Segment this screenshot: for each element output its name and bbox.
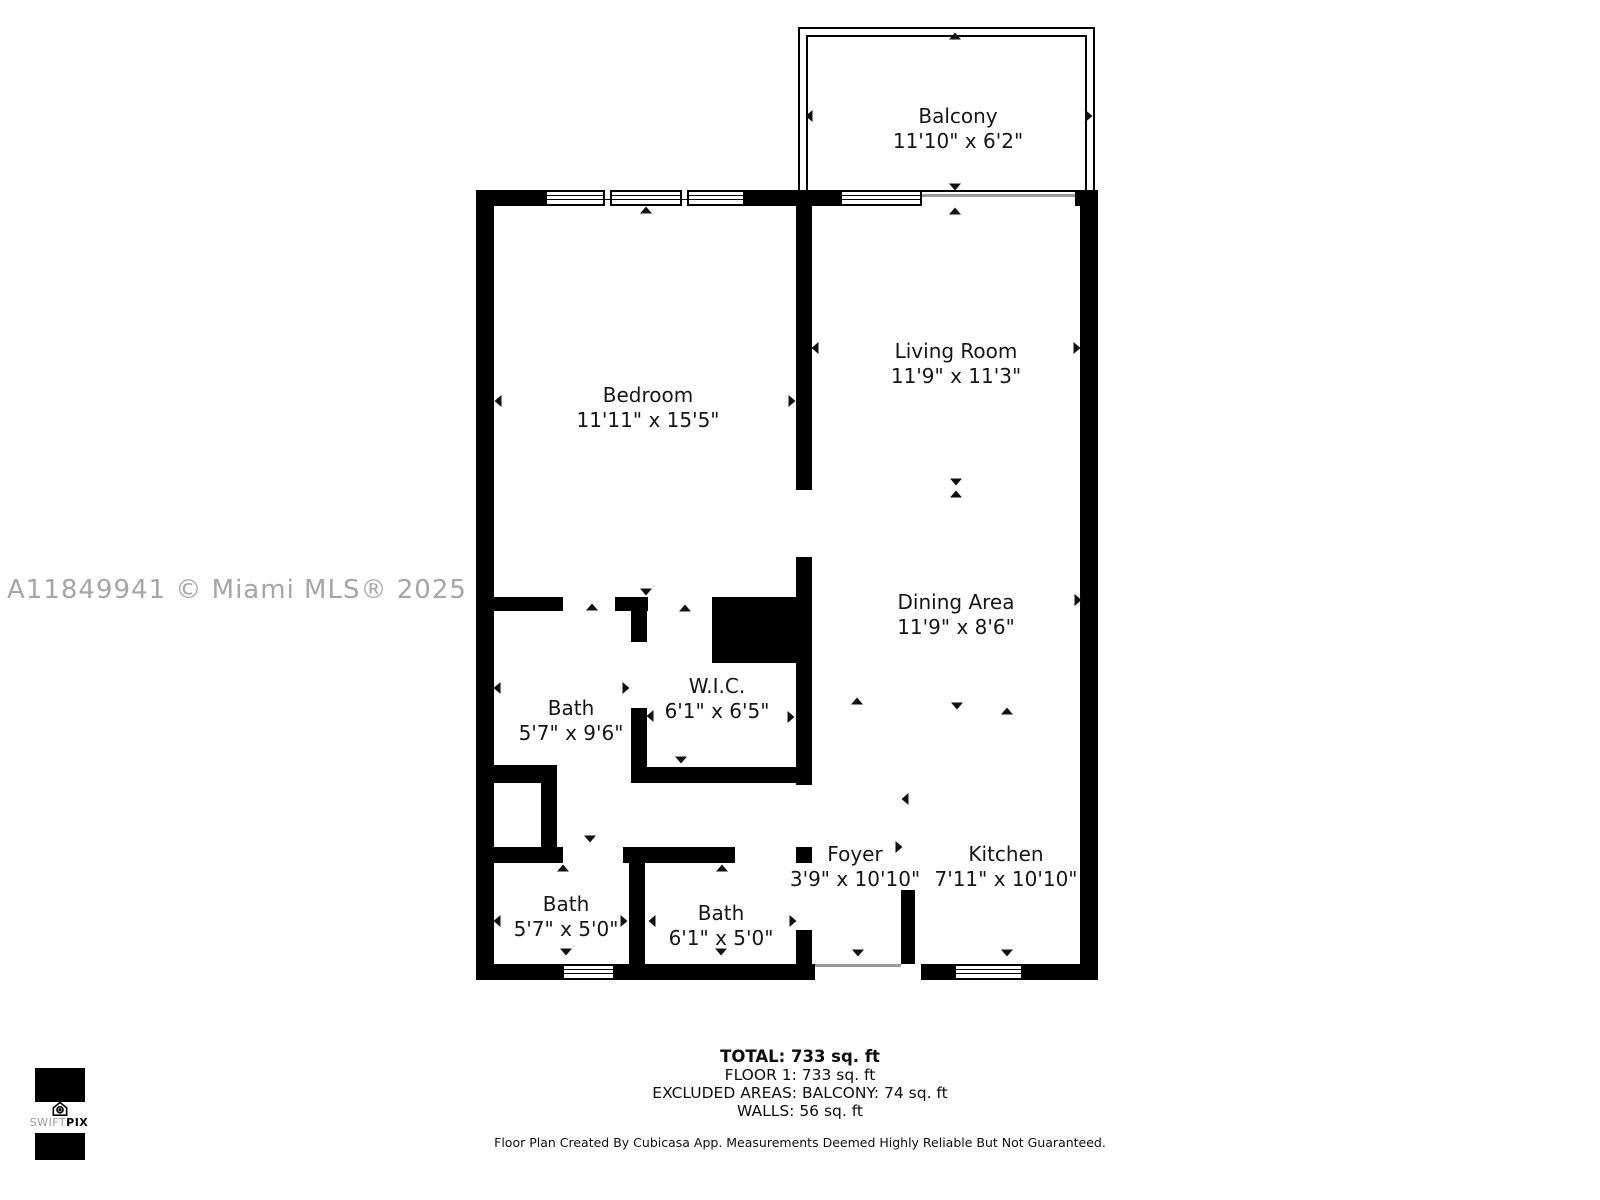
measure-arrow-icon — [623, 682, 630, 694]
measure-arrow-icon — [584, 836, 596, 843]
logo-wordmark: SWIFTPIX — [27, 1116, 91, 1129]
logo-square-bottom — [35, 1133, 85, 1160]
area-summary: TOTAL: 733 sq. ft FLOOR 1: 733 sq. ft EX… — [0, 1048, 1600, 1120]
living-room-window — [840, 190, 922, 206]
wall-segment — [631, 597, 647, 642]
measure-arrow-icon — [621, 915, 628, 927]
measure-arrow-icon — [949, 33, 961, 40]
excluded-area: EXCLUDED AREAS: BALCONY: 74 sq. ft — [0, 1084, 1600, 1102]
wall-segment — [476, 190, 545, 206]
balcony-sliding-door-opening — [922, 194, 1075, 197]
measure-arrow-icon — [640, 207, 652, 214]
room-label-balcony: Balcony 11'10" x 6'2" — [893, 104, 1023, 154]
wall-segment — [745, 190, 840, 206]
measure-arrow-icon — [560, 949, 572, 956]
measure-arrow-icon — [851, 698, 863, 705]
logo-square-top — [35, 1068, 85, 1102]
entry-door-opening — [815, 964, 901, 967]
measure-arrow-icon — [494, 915, 501, 927]
measure-arrow-icon — [1074, 342, 1081, 354]
total-area: TOTAL: 733 sq. ft — [0, 1048, 1600, 1066]
measure-arrow-icon — [806, 110, 813, 122]
measure-arrow-icon — [949, 184, 961, 191]
wall-segment — [494, 847, 563, 863]
measure-arrow-icon — [950, 491, 962, 498]
measure-arrow-icon — [1001, 708, 1013, 715]
bedroom-window — [545, 190, 745, 206]
measure-arrow-icon — [852, 950, 864, 957]
measure-arrow-icon — [1001, 950, 1013, 957]
measure-arrow-icon — [647, 710, 654, 722]
room-label-dining-area: Dining Area 11'9" x 8'6" — [897, 590, 1015, 640]
wall-segment — [476, 964, 562, 980]
measure-arrow-icon — [679, 605, 691, 612]
wall-segment — [615, 964, 815, 980]
logo-text-bold: PIX — [66, 1116, 88, 1129]
wall-segment — [796, 206, 812, 490]
kitchen-window — [954, 964, 1023, 980]
measure-arrow-icon — [715, 949, 727, 956]
wall-segment — [921, 964, 954, 980]
wall-segment — [631, 767, 812, 783]
measure-arrow-icon — [1075, 594, 1082, 606]
measure-arrow-icon — [716, 865, 728, 872]
window-mullion — [603, 190, 612, 206]
wall-segment — [494, 597, 563, 611]
room-label-living-room: Living Room 11'9" x 11'3" — [891, 339, 1021, 389]
room-label-bath-1: Bath 5'7" x 9'6" — [519, 696, 624, 746]
wall-segment — [541, 783, 557, 847]
wall-segment — [629, 863, 645, 964]
measure-arrow-icon — [789, 395, 796, 407]
floor-area: FLOOR 1: 733 sq. ft — [0, 1066, 1600, 1084]
room-label-bath-3: Bath 6'1" x 5'0" — [669, 901, 774, 951]
wall-segment — [1023, 964, 1098, 980]
measure-arrow-icon — [812, 342, 819, 354]
bath-window — [562, 964, 615, 980]
window-mullion — [680, 190, 689, 206]
mls-watermark: A11849941 © Miami MLS® 2025 — [7, 575, 467, 605]
wall-segment — [1080, 190, 1098, 980]
measure-arrow-icon — [788, 711, 795, 723]
disclaimer-text: Floor Plan Created By Cubicasa App. Meas… — [0, 1135, 1600, 1150]
measure-arrow-icon — [675, 757, 687, 764]
measure-arrow-icon — [557, 865, 569, 872]
wall-segment — [1075, 190, 1098, 206]
room-label-kitchen: Kitchen 7'11" x 10'10" — [934, 842, 1077, 892]
wall-segment — [901, 890, 915, 964]
utility-shaft — [712, 597, 812, 663]
wall-segment — [623, 847, 735, 863]
measure-arrow-icon — [495, 395, 502, 407]
room-label-bath-2: Bath 5'7" x 5'0" — [514, 892, 619, 942]
logo-text-light: SWIFT — [30, 1116, 66, 1129]
measure-arrow-icon — [649, 915, 656, 927]
room-label-wic: W.I.C. 6'1" x 6'5" — [665, 674, 770, 724]
measure-arrow-icon — [896, 841, 903, 853]
measure-arrow-icon — [950, 479, 962, 486]
measure-arrow-icon — [951, 703, 963, 710]
wall-segment — [476, 190, 494, 980]
wall-segment — [494, 765, 557, 783]
measure-arrow-icon — [640, 589, 652, 596]
floor-plan-page: { "watermark": "A11849941 © Miami MLS® 2… — [0, 0, 1600, 1200]
measure-arrow-icon — [494, 682, 501, 694]
room-label-bedroom: Bedroom 11'11" x 15'5" — [576, 383, 719, 433]
measure-arrow-icon — [790, 915, 797, 927]
measure-arrow-icon — [949, 208, 961, 215]
measure-arrow-icon — [586, 604, 598, 611]
measure-arrow-icon — [902, 793, 909, 805]
wall-segment — [796, 930, 812, 964]
wall-segment — [796, 557, 812, 785]
measure-arrow-icon — [1086, 110, 1093, 122]
walls-area: WALLS: 56 sq. ft — [0, 1102, 1600, 1120]
